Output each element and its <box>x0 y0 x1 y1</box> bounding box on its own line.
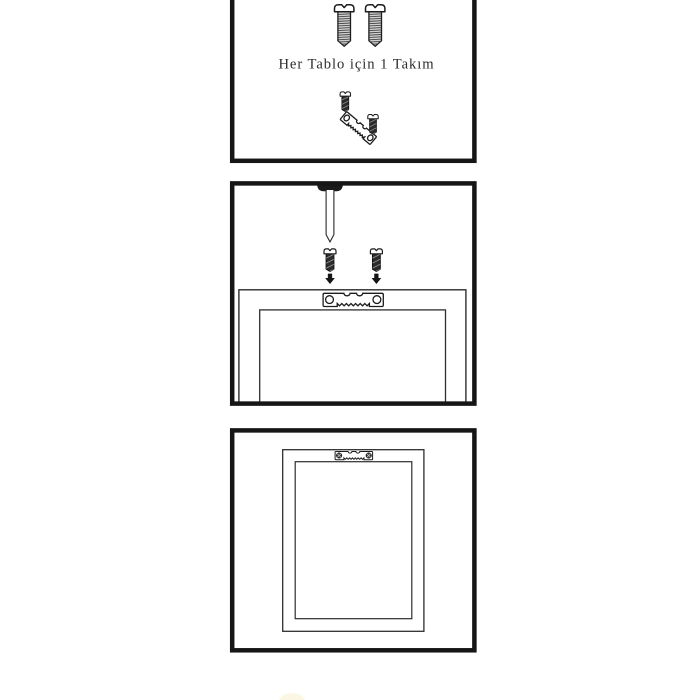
svg-text:Her Tablo için 1 Takım: Her Tablo için 1 Takım <box>278 57 434 73</box>
